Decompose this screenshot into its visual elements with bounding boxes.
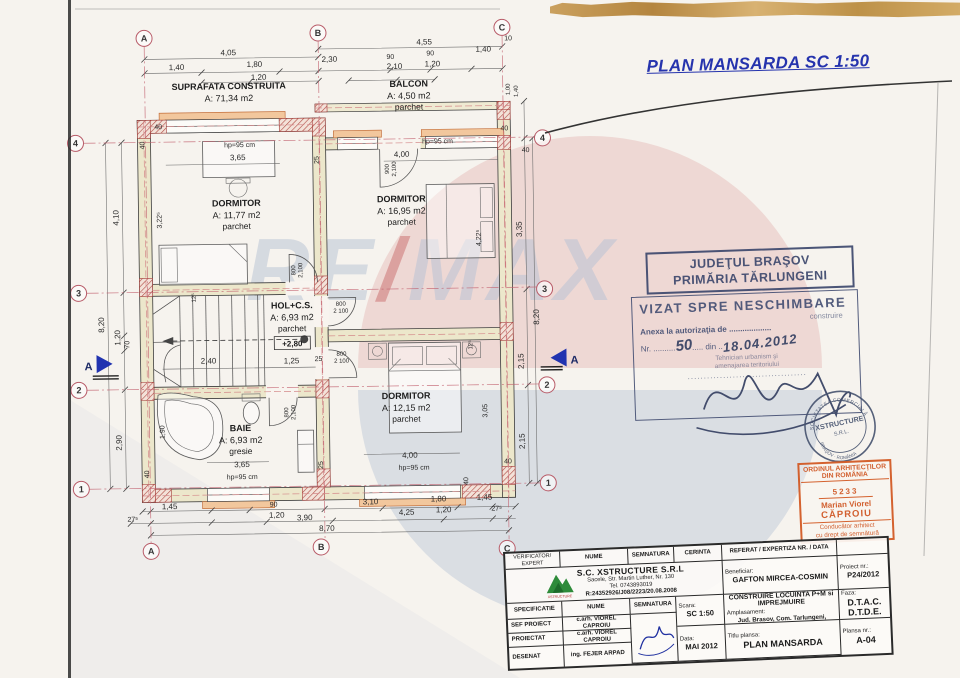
dim-label: 2 100	[333, 309, 349, 315]
dim-label: 1,40	[514, 85, 520, 97]
dim-label: 1,20	[113, 329, 122, 345]
dim-label: 10	[504, 35, 512, 42]
axis-bubble-label: C	[499, 22, 506, 32]
axis-bubble-3: 3	[536, 281, 552, 297]
dim-label: 1,25	[284, 356, 300, 365]
dim-label: 12⁵	[467, 340, 474, 350]
axis-bubble-2: 2	[539, 377, 555, 393]
dim-label: hp=95 cm	[224, 142, 255, 149]
axis-bubble-label: 3	[542, 284, 547, 294]
dim-label: 2,40	[201, 356, 217, 365]
axis-bubble-label: 1	[546, 478, 551, 488]
sheet-right-edge	[924, 83, 938, 556]
dim-label: 40	[500, 125, 508, 132]
axis-bubble-3: 3	[70, 285, 86, 301]
vizat-date-handwritten: 18.04.2012	[722, 331, 798, 355]
axis-bubble-label: 3	[76, 288, 81, 298]
dim-label: 2,15	[516, 353, 525, 369]
dim-label: 27⁵	[127, 517, 138, 524]
architects-order-stamp: ORDINUL ARHITECŢILOR DIN ROMÂNIA 5233 Ma…	[797, 459, 894, 544]
room-area: A: 6,93 m2	[270, 312, 314, 323]
room-name: DORMITOR	[377, 194, 426, 205]
dim-label: 1,00	[506, 83, 512, 95]
room-area: A: 12,15 m2	[382, 402, 431, 413]
dim-label: 40	[522, 147, 530, 154]
axis-bubble-label: 1	[79, 484, 84, 494]
room-name: BALCON	[389, 78, 428, 89]
dim-label: 2,90	[115, 434, 124, 450]
axis-bubble-label: A	[141, 33, 148, 43]
dim-label: 40	[463, 477, 470, 485]
svg-text:A: A	[571, 354, 579, 366]
axis-bubble-C: C	[494, 19, 510, 35]
room-finish: parchet	[278, 323, 307, 333]
tb-proiect-nr: Proiect nr.: P24/2012	[837, 554, 888, 590]
photographed-floor-plan-sheet: RE/MAX	[0, 0, 960, 678]
dim-label: 90	[426, 50, 434, 57]
furniture-dormitor-2	[426, 184, 495, 259]
vizat-din-label: din	[705, 342, 716, 351]
dim-label: hp=95 cm	[399, 464, 430, 471]
dim-label: 8,20	[97, 317, 106, 333]
dim-label: 1,45	[162, 502, 178, 511]
dim-label: 3,05	[482, 404, 489, 418]
dim-label: 27⁵	[491, 505, 502, 512]
room-name: DORMITOR	[212, 198, 261, 209]
dim-label: 2,100	[298, 262, 304, 278]
room-finish: gresie	[229, 446, 253, 456]
axis-bubble-label: 4	[540, 133, 545, 143]
tb-titlu-plansa: Titlu plansa: PLAN MANSARDA	[725, 620, 841, 660]
room-name: DORMITOR	[382, 390, 431, 401]
tb-plansa-nr: Plansa nr.: A-04	[840, 618, 891, 655]
svg-text:XSTRUCTURE: XSTRUCTURE	[547, 594, 572, 599]
room-name: HOL+C.S.	[271, 300, 313, 311]
axis-bubble-label: B	[318, 542, 325, 552]
dim-label: 8,20	[532, 309, 541, 325]
dim-label: 3,35	[515, 221, 524, 237]
room-area: A: 16,95 m2	[377, 206, 426, 217]
axis-bubble-label: 4	[73, 138, 78, 148]
blue-signature-scrawl	[632, 616, 676, 660]
dim-label: 1,20	[269, 511, 285, 520]
dim-label: 8,70	[319, 524, 335, 533]
room-finish: parchet	[395, 102, 424, 112]
dim-label: 12⁵	[191, 293, 198, 303]
room-area: A: 4,50 m2	[387, 90, 431, 101]
round-stamp-srl: S.R.L.	[833, 429, 850, 438]
tb-hdr-semnatura: SEMNATURA	[628, 547, 675, 565]
room-area: A: 6,93 m2	[219, 435, 263, 446]
dim-label: 25	[315, 356, 323, 363]
primaria-stamp: JUDEŢUL BRAŞOV PRIMĂRIA TĂRLUNGENI	[645, 245, 854, 294]
dim-label: 3,90	[297, 513, 313, 522]
dim-label: 25	[314, 156, 321, 164]
room-label-suprafata-construita: SUPRAFATA CONSTRUITAA: 71,34 m2	[172, 80, 287, 104]
dim-label: 2,15	[518, 433, 527, 449]
axis-bubble-B: B	[313, 539, 329, 555]
plan-group: A A 4,054,55101,401,802,3090901,401,202,…	[66, 18, 581, 562]
dim-label: 2,30	[322, 55, 338, 64]
vizat-nr-label: Nr.	[641, 344, 652, 353]
room-area: A: 11,77 m2	[213, 210, 261, 221]
tb-desenat: DESENAT	[509, 646, 565, 669]
dim-label: 90	[386, 54, 394, 61]
dim-label: 2,10	[387, 62, 403, 71]
dim-label: 90	[270, 502, 278, 509]
axis-bubble-B: B	[310, 25, 326, 41]
dim-label: 25	[318, 461, 325, 469]
tb-data: Data: MAI 2012	[677, 625, 726, 662]
room-area: A: 71,34 m2	[205, 93, 254, 104]
vizat-nr-handwritten: 50	[674, 336, 693, 355]
tb-scara: Scara: SC 1:50	[676, 595, 725, 627]
dim-label: 40	[154, 124, 162, 131]
axis-bubble-label: 2	[76, 385, 81, 395]
axis-bubble-label: A	[148, 546, 155, 556]
dim-label: 1,90	[159, 425, 166, 439]
dim-label: 70	[124, 341, 131, 349]
tb-signatures	[631, 613, 679, 664]
dim-label: 4,55	[416, 37, 432, 46]
dim-label: 4,00	[394, 150, 410, 159]
section-marker-left: A	[84, 355, 118, 379]
dim-label: 1,20	[425, 59, 441, 68]
room-name: SUPRAFATA CONSTRUITA	[172, 80, 287, 92]
tb-name-desenat: ing. FEJER ARPAD	[564, 643, 633, 667]
dim-label: 3,65	[234, 460, 250, 469]
axis-bubble-A: A	[136, 30, 152, 46]
dim-label: 2,100	[291, 404, 297, 420]
axis-bubble-2: 2	[71, 382, 87, 398]
dim-label: 40	[139, 141, 146, 149]
axis-bubble-label: B	[315, 28, 322, 38]
dim-label: 800	[284, 407, 290, 418]
axis-bubble-1: 1	[540, 475, 556, 491]
sheet-left-edge	[68, 0, 71, 678]
dim-label: 1,45	[477, 493, 493, 502]
dim-label: 900	[385, 163, 391, 174]
tb-semnatura2: SEMNATURA	[630, 597, 677, 615]
dim-label: 4,05	[220, 48, 236, 57]
title-block: VERIFICATOR/EXPERT NUME SEMNATURA CERINT…	[503, 536, 894, 671]
dim-label: 1,80	[431, 494, 447, 503]
dim-label: 4,00	[402, 451, 418, 460]
dim-label: 4,25	[399, 508, 415, 517]
tb-titlu-proiect: Titlu proiect: CONSTRUIRE LOCUINTA P+M s…	[724, 590, 840, 625]
tb-faza: Faza: D.T.A.C. D.T.D.E.	[839, 588, 890, 620]
room-name: BAIE	[230, 423, 252, 433]
tb-beneficiar: Beneficiar: GAFTON MIRCEA-COSMIN	[723, 556, 839, 595]
dim-label: 4,22⁵	[476, 229, 483, 246]
dim-label: 1,20	[436, 505, 452, 514]
dim-label: hp=95 cm	[227, 474, 258, 481]
axis-bubble-A: A	[143, 543, 159, 559]
sheet-top-edge	[545, 81, 952, 133]
dim-label: 3,10	[363, 497, 379, 506]
room-label-hol-c-s-: HOL+C.S.A: 6,93 m2parchet+2,80	[270, 300, 314, 350]
dim-label: 3,65	[230, 153, 246, 162]
room-finish: parchet	[222, 221, 251, 231]
room-label-baie: BAIEA: 6,93 m2gresie	[219, 423, 263, 457]
dim-label: 2 100	[334, 359, 350, 365]
dim-label: 1,80	[247, 60, 263, 69]
svg-text:A: A	[85, 361, 93, 373]
room-level: +2,80	[282, 339, 303, 348]
dim-label: 1,40	[169, 63, 185, 72]
dim-label: 2,100	[392, 161, 398, 177]
room-finish: parchet	[387, 217, 416, 227]
axis-bubble-label: 2	[544, 380, 549, 390]
dim-label: 800	[336, 352, 347, 358]
dim-label: hp=95 cm	[422, 138, 453, 145]
dim-label: 1,40	[475, 45, 491, 54]
axis-bubble-1: 1	[73, 481, 89, 497]
dim-label: 40	[504, 458, 512, 465]
dim-label: 800	[336, 302, 347, 308]
dim-label: 3,22⁵	[156, 212, 163, 229]
xstructure-logo: XSTRUCTURE	[544, 570, 575, 599]
dim-label: 40	[144, 470, 151, 478]
room-finish: parchet	[392, 414, 421, 424]
oar-number: 5233	[818, 485, 872, 499]
dim-label: 800	[291, 265, 297, 276]
dim-label: 4,10	[111, 209, 120, 225]
